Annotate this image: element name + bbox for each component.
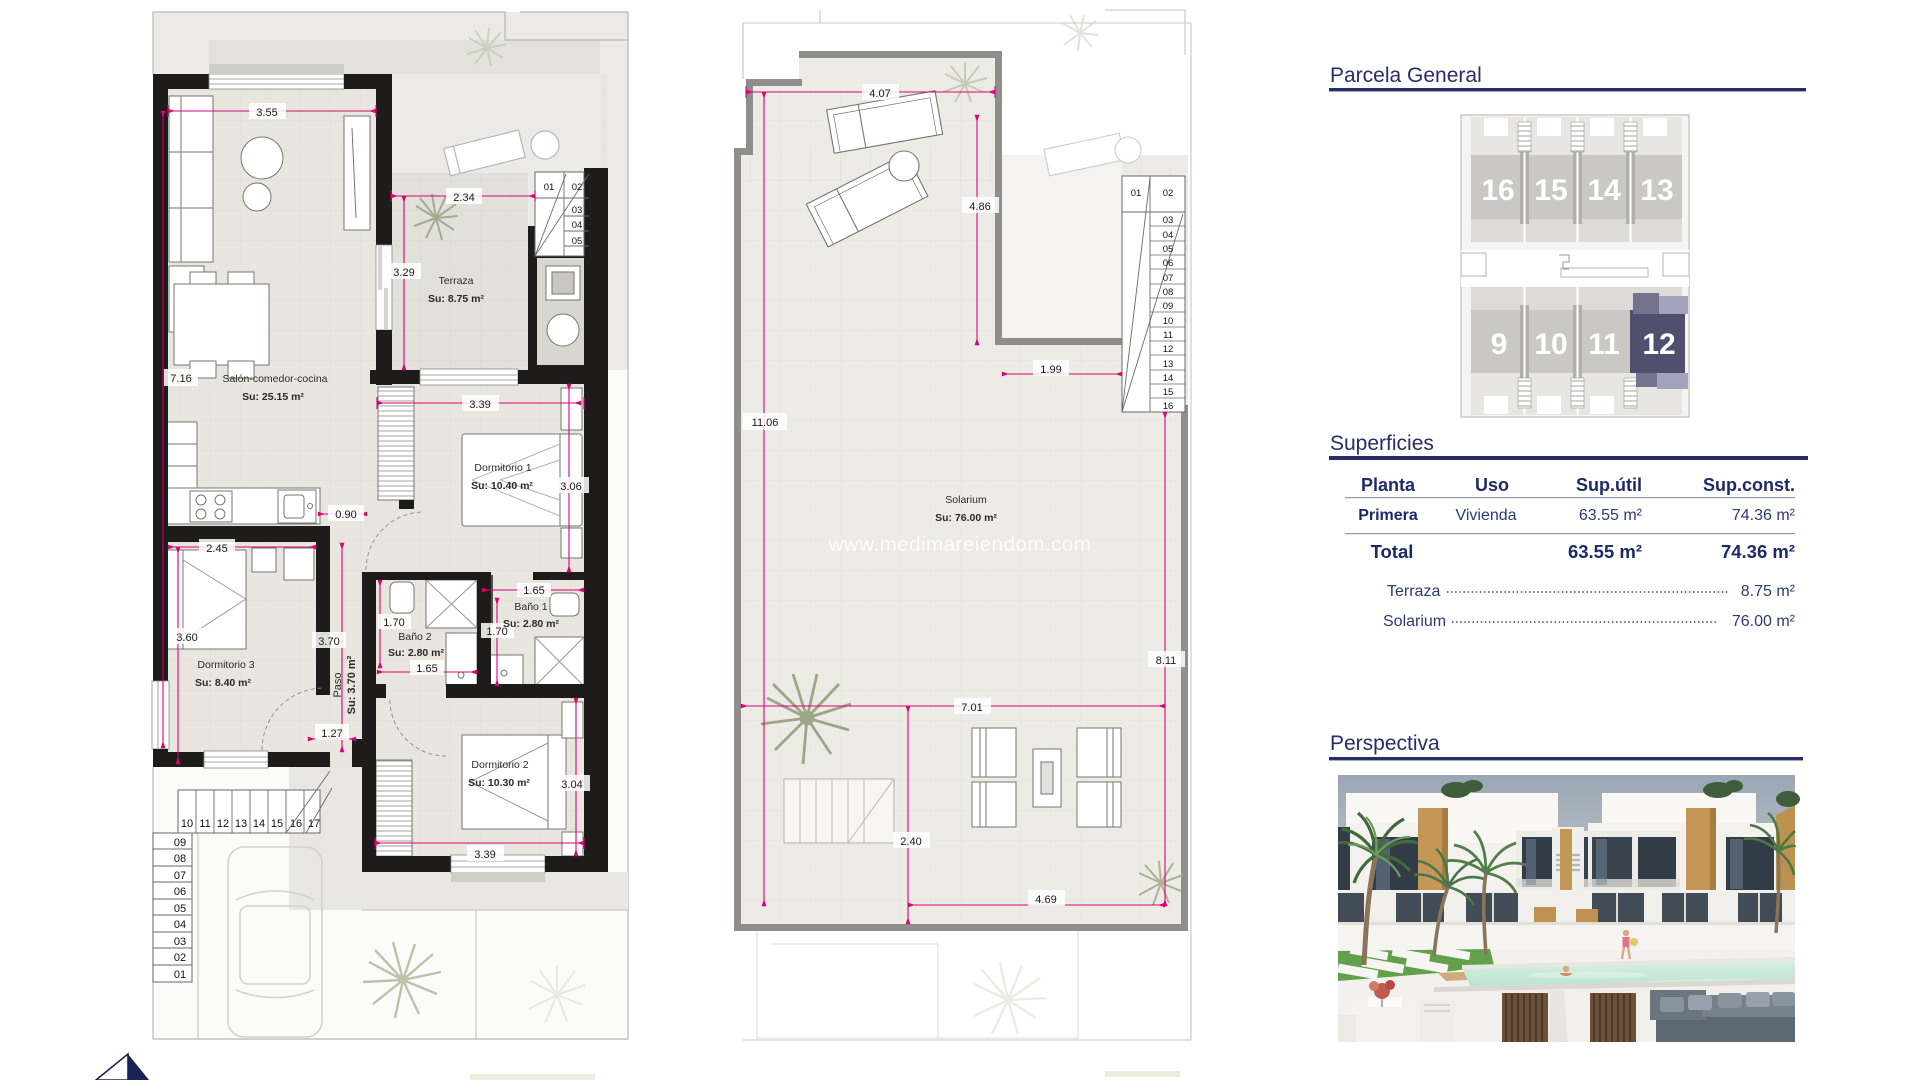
svg-text:Dormitorio 2: Dormitorio 2 xyxy=(471,759,528,771)
svg-text:Primera: Primera xyxy=(1358,507,1418,524)
svg-text:01: 01 xyxy=(174,969,186,981)
svg-text:12: 12 xyxy=(217,818,229,830)
svg-text:8.75 m²: 8.75 m² xyxy=(1741,583,1796,600)
svg-text:Perspectiva: Perspectiva xyxy=(1330,732,1440,755)
svg-text:7.01: 7.01 xyxy=(961,702,982,714)
svg-text:Su: 10.30 m²: Su: 10.30 m² xyxy=(468,777,530,789)
svg-text:3.55: 3.55 xyxy=(256,107,277,119)
svg-text:02: 02 xyxy=(572,182,583,193)
svg-text:09: 09 xyxy=(174,837,186,849)
svg-text:11.06: 11.06 xyxy=(752,417,779,429)
svg-text:04: 04 xyxy=(174,919,186,931)
svg-text:16: 16 xyxy=(1163,401,1174,412)
svg-text:Su: 10.40 m²: Su: 10.40 m² xyxy=(471,480,533,492)
svg-text:07: 07 xyxy=(174,870,186,882)
svg-text:Uso: Uso xyxy=(1475,475,1509,495)
svg-text:01: 01 xyxy=(1131,188,1142,199)
svg-text:05: 05 xyxy=(572,236,583,247)
svg-text:63.55 m²: 63.55 m² xyxy=(1579,507,1643,524)
svg-text:12: 12 xyxy=(1163,344,1174,355)
svg-text:Baño 1: Baño 1 xyxy=(514,601,547,613)
svg-text:06: 06 xyxy=(1163,258,1174,269)
svg-text:11: 11 xyxy=(199,818,210,830)
svg-text:02: 02 xyxy=(174,952,186,964)
svg-text:Su: 2.80 m²: Su: 2.80 m² xyxy=(503,618,560,630)
svg-text:Su: 25.15 m²: Su: 25.15 m² xyxy=(242,391,304,403)
svg-text:Terraza: Terraza xyxy=(438,275,473,287)
svg-text:03: 03 xyxy=(174,936,186,948)
svg-text:Parcela General: Parcela General xyxy=(1330,64,1482,87)
svg-text:Sup.útil: Sup.útil xyxy=(1576,475,1642,495)
svg-text:Su: 8.40 m²: Su: 8.40 m² xyxy=(195,677,252,689)
svg-text:1.65: 1.65 xyxy=(523,585,544,597)
svg-text:02: 02 xyxy=(1163,188,1174,199)
svg-text:4.69: 4.69 xyxy=(1035,894,1056,906)
svg-text:Sup.const.: Sup.const. xyxy=(1703,475,1795,495)
svg-text:14: 14 xyxy=(1587,174,1621,207)
svg-text:14: 14 xyxy=(253,818,265,830)
svg-text:15: 15 xyxy=(1163,387,1174,398)
svg-text:4.86: 4.86 xyxy=(969,201,990,213)
svg-text:15: 15 xyxy=(271,818,283,830)
svg-text:0.90: 0.90 xyxy=(335,509,356,521)
svg-text:1.27: 1.27 xyxy=(321,728,342,740)
svg-text:04: 04 xyxy=(1163,230,1174,241)
svg-text:76.00 m²: 76.00 m² xyxy=(1732,613,1796,630)
svg-text:7.16: 7.16 xyxy=(170,373,191,385)
svg-text:12: 12 xyxy=(1642,328,1675,361)
svg-text:Paso: Paso xyxy=(332,672,344,697)
svg-text:3.29: 3.29 xyxy=(393,267,414,279)
svg-text:1.65: 1.65 xyxy=(416,663,437,675)
svg-text:07: 07 xyxy=(1163,273,1174,284)
svg-text:13: 13 xyxy=(1640,174,1673,207)
svg-text:Vivienda: Vivienda xyxy=(1455,507,1516,524)
svg-text:05: 05 xyxy=(174,903,186,915)
svg-text:Total: Total xyxy=(1371,541,1414,562)
svg-text:2.45: 2.45 xyxy=(206,543,227,555)
svg-text:3.04: 3.04 xyxy=(561,779,582,791)
svg-text:74.36 m²: 74.36 m² xyxy=(1721,541,1795,562)
svg-text:2.40: 2.40 xyxy=(900,836,921,848)
svg-text:Dormitorio 3: Dormitorio 3 xyxy=(197,659,254,671)
svg-text:17: 17 xyxy=(308,818,320,830)
svg-text:Su: 3.70 m²: Su: 3.70 m² xyxy=(346,655,358,714)
svg-text:03: 03 xyxy=(572,205,583,216)
svg-text:2.34: 2.34 xyxy=(453,192,474,204)
svg-text:Su: 76.00 m²: Su: 76.00 m² xyxy=(935,512,997,524)
svg-text:16: 16 xyxy=(1481,174,1514,207)
svg-text:3.06: 3.06 xyxy=(560,481,581,493)
svg-text:10: 10 xyxy=(1534,328,1567,361)
svg-text:13: 13 xyxy=(1163,359,1174,370)
svg-text:Superficies: Superficies xyxy=(1330,432,1434,455)
svg-text:14: 14 xyxy=(1163,373,1174,384)
svg-text:Planta: Planta xyxy=(1361,475,1416,495)
svg-text:16: 16 xyxy=(290,818,302,830)
svg-text:Su: 2.80 m²: Su: 2.80 m² xyxy=(388,647,445,659)
svg-text:Solarium: Solarium xyxy=(945,494,987,506)
svg-text:01: 01 xyxy=(544,182,555,193)
svg-text:11: 11 xyxy=(1163,330,1173,341)
svg-text:03: 03 xyxy=(1163,215,1174,226)
svg-text:3.60: 3.60 xyxy=(176,632,197,644)
svg-text:06: 06 xyxy=(174,886,186,898)
svg-text:3.39: 3.39 xyxy=(469,399,490,411)
svg-text:Baño 2: Baño 2 xyxy=(398,631,431,643)
svg-text:Solarium: Solarium xyxy=(1383,613,1446,630)
svg-text:08: 08 xyxy=(174,853,186,865)
svg-text:Dormitorio 1: Dormitorio 1 xyxy=(474,462,531,474)
svg-text:1.70: 1.70 xyxy=(383,617,404,629)
svg-text:9: 9 xyxy=(1491,328,1508,361)
svg-text:10: 10 xyxy=(1163,316,1174,327)
svg-text:Salón-comedor-cocina: Salón-comedor-cocina xyxy=(222,373,327,385)
svg-text:15: 15 xyxy=(1534,174,1567,207)
svg-text:09: 09 xyxy=(1163,301,1174,312)
svg-text:63.55 m²: 63.55 m² xyxy=(1568,541,1642,562)
svg-text:74.36 m²: 74.36 m² xyxy=(1732,507,1796,524)
svg-text:Terraza: Terraza xyxy=(1387,583,1440,600)
svg-text:3.70: 3.70 xyxy=(318,636,339,648)
svg-text:08: 08 xyxy=(1163,287,1174,298)
svg-text:4.07: 4.07 xyxy=(869,88,890,100)
svg-text:Su: 8.75 m²: Su: 8.75 m² xyxy=(428,293,485,305)
svg-text:11: 11 xyxy=(1588,328,1620,361)
svg-text:3.39: 3.39 xyxy=(474,849,495,861)
svg-text:10: 10 xyxy=(181,818,193,830)
svg-text:05: 05 xyxy=(1163,244,1174,255)
svg-text:04: 04 xyxy=(572,220,583,231)
svg-text:www.medimareiendom.com: www.medimareiendom.com xyxy=(828,533,1092,556)
svg-text:13: 13 xyxy=(235,818,247,830)
svg-text:1.99: 1.99 xyxy=(1040,364,1061,376)
svg-text:8.11: 8.11 xyxy=(1156,655,1177,667)
